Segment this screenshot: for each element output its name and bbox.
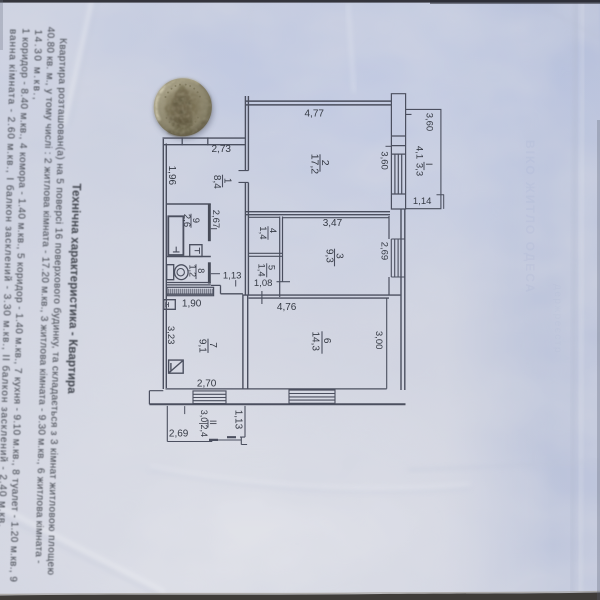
svg-text:3,0|2,4: 3,0|2,4 bbox=[199, 410, 209, 437]
svg-text:1,14: 1,14 bbox=[413, 196, 432, 207]
svg-text:4,77: 4,77 bbox=[305, 109, 325, 120]
svg-text:2,73: 2,73 bbox=[212, 144, 232, 155]
svg-text:17,2: 17,2 bbox=[308, 154, 320, 175]
svg-text:1,4: 1,4 bbox=[257, 226, 268, 239]
svg-text:3,00: 3,00 bbox=[373, 331, 384, 350]
svg-text:3,3: 3,3 bbox=[414, 163, 425, 176]
svg-text:3,60: 3,60 bbox=[378, 151, 389, 170]
svg-text:4,1: 4,1 bbox=[414, 146, 425, 159]
svg-text:1,08: 1,08 bbox=[254, 278, 273, 289]
svg-text:держреєстр: держреєстр bbox=[552, 284, 563, 354]
svg-text:3,47: 3,47 bbox=[323, 218, 343, 229]
svg-text:2,69: 2,69 bbox=[169, 429, 189, 440]
svg-text:1,96: 1,96 bbox=[166, 166, 177, 186]
svg-text:4,76: 4,76 bbox=[277, 302, 297, 313]
svg-text:14,3: 14,3 bbox=[310, 332, 321, 352]
svg-text:3,23: 3,23 bbox=[165, 326, 176, 345]
svg-text:1,90: 1,90 bbox=[182, 298, 202, 309]
svg-text:1,4: 1,4 bbox=[256, 264, 267, 277]
svg-text:2,69: 2,69 bbox=[379, 242, 390, 261]
svg-text:3,60: 3,60 bbox=[424, 113, 435, 132]
svg-text:2,67: 2,67 bbox=[210, 210, 221, 229]
svg-text:ВІКО ЖИТЛО ОДЕСА: ВІКО ЖИТЛО ОДЕСА bbox=[523, 140, 537, 294]
svg-text:6: 6 bbox=[321, 338, 332, 344]
svg-text:2,6: 2,6 bbox=[181, 214, 192, 227]
svg-text:9,1: 9,1 bbox=[197, 339, 208, 353]
svg-text:1,13: 1,13 bbox=[233, 410, 244, 430]
svg-text:8,4: 8,4 bbox=[211, 175, 222, 189]
svg-text:1,13: 1,13 bbox=[223, 270, 242, 281]
svg-text:2,70: 2,70 bbox=[197, 379, 217, 390]
svg-text:9,3: 9,3 bbox=[323, 249, 334, 263]
svg-text:14.30 м.кв.,: 14.30 м.кв., bbox=[30, 29, 43, 101]
svg-text:1: 1 bbox=[221, 178, 232, 184]
svg-text:1,2: 1,2 bbox=[187, 265, 197, 278]
